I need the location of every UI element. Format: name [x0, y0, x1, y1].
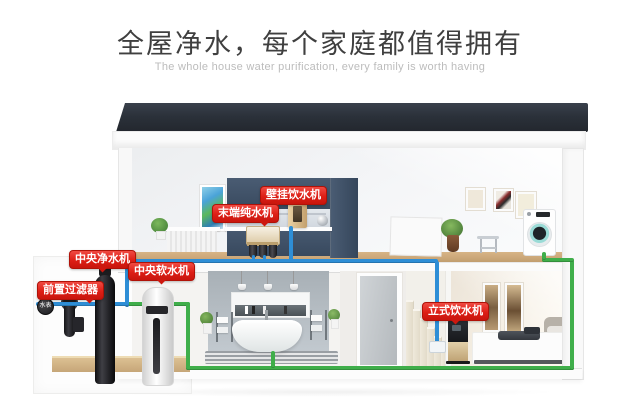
- washing-machine-display: [536, 212, 550, 217]
- green-pipe-right-riser: [570, 260, 574, 370]
- pendant-cord: [241, 271, 242, 284]
- standing-dispenser-top: [448, 320, 468, 342]
- softener-window-slot: [153, 318, 160, 374]
- picture-frame: [494, 189, 513, 211]
- page-title: 全屋净水，每个家庭都值得拥有: [0, 22, 640, 61]
- plant-pot: [447, 235, 459, 252]
- callout-wall-dispenser: 壁挂饮水机: [260, 186, 327, 205]
- roof: [116, 103, 588, 132]
- towel: [311, 325, 322, 331]
- water-meter-label: 水表: [39, 303, 51, 309]
- stool-leg: [480, 239, 482, 253]
- kitchen-tall-cabinet: [330, 178, 358, 258]
- pendant-cord: [267, 271, 268, 284]
- stool-leg: [495, 239, 497, 253]
- stool-bar: [481, 247, 496, 249]
- door-handle: [390, 319, 393, 322]
- pipe-wall-connector: [429, 341, 446, 353]
- bed-base-shadow: [474, 360, 574, 364]
- pendant-lamp: [264, 284, 272, 290]
- green-pipe-left-drop: [186, 302, 190, 370]
- blue-pipe-dispenser-drop: [289, 226, 293, 261]
- towel: [311, 315, 322, 321]
- pendant-cord: [293, 271, 294, 284]
- standing-dispenser-body: [448, 342, 468, 361]
- pendant-lamp: [290, 284, 298, 290]
- plant-pot: [156, 231, 166, 240]
- callout-terminal-purifier: 末端纯水机: [212, 204, 279, 223]
- bottle: [284, 306, 287, 314]
- plant-pot: [331, 319, 339, 329]
- green-pipe-washer-stub: [542, 252, 546, 260]
- bedroom-wall-art: [505, 283, 523, 334]
- callout-standing-dispenser: 立式饮水机: [422, 302, 489, 321]
- kettle: [317, 215, 328, 226]
- washing-machine-door: [527, 222, 552, 247]
- console-table: [167, 231, 217, 252]
- washing-machine-dial: [527, 212, 531, 216]
- picture-frame: [466, 188, 485, 210]
- softener-control-panel: [146, 306, 168, 314]
- green-pipe-bottom-run: [186, 366, 574, 370]
- wall-dispenser-panel: [293, 206, 302, 222]
- page-subtitle: The whole house water purification, ever…: [0, 61, 640, 73]
- filter-cartridge: [269, 245, 277, 258]
- bottle: [252, 306, 255, 314]
- towel: [217, 317, 228, 323]
- callout-central-purifier: 中央净水机: [69, 250, 136, 269]
- green-pipe-tub-branch: [271, 351, 275, 368]
- water-meter: 水表: [37, 298, 54, 315]
- standing-dispenser-screen: [452, 325, 461, 331]
- standing-dispenser-base: [446, 361, 470, 364]
- callout-central-softener: 中央软水机: [128, 262, 195, 281]
- bottle: [245, 306, 248, 314]
- leaning-canvas: [389, 216, 442, 256]
- pre-filter-outlet: [73, 317, 84, 332]
- callout-pre-filter: 前置过滤器: [37, 281, 104, 300]
- pendant-lamp: [238, 284, 246, 290]
- promo-poster: 全屋净水，每个家庭都值得拥有 The whole house water pur…: [0, 0, 640, 402]
- clothes-on-bed: [524, 327, 540, 334]
- green-pipe-washer-elbow: [542, 258, 574, 262]
- plant-pot: [203, 323, 212, 334]
- towel: [217, 327, 228, 333]
